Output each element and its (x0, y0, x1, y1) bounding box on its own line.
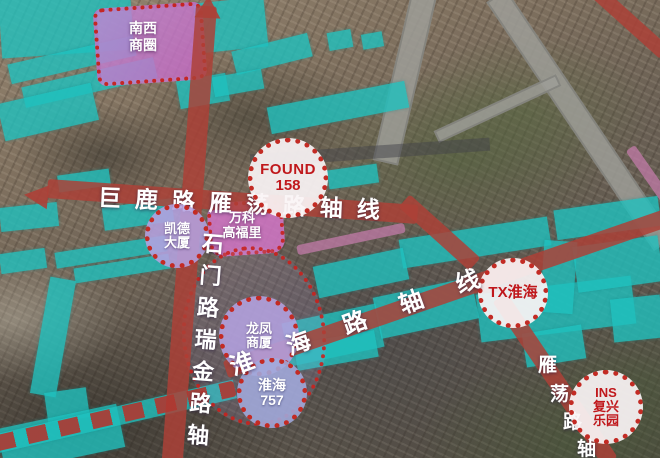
axis-char-yandang-2: 荡 (550, 379, 569, 406)
highway-ramp (434, 74, 562, 143)
cyan-zone (361, 31, 384, 49)
ins-line1: INS (595, 386, 617, 400)
cyan-zone (327, 29, 354, 51)
axis-arrow-left (23, 183, 49, 209)
kaide-line2: 大厦 (164, 236, 190, 250)
found158-line1: FOUND (260, 162, 316, 179)
cyan-zone (30, 277, 76, 398)
callout-ins-fuxing-leyuan: INS 复兴 乐园 (569, 370, 643, 444)
axis-char-yandang-1: 雁 (538, 350, 557, 377)
satellite-map[interactable]: 巨鹿路雁荡路轴线 雁 荡 路 轴 FOUND 158 凯德 大厦 龙凤 商厦 淮… (0, 0, 660, 458)
elevated-highway-north-south (373, 0, 438, 166)
red-band-top-right (589, 0, 660, 59)
wanke-line1: 万科 (212, 210, 272, 225)
huaihai757-line1: 淮海 (258, 378, 286, 393)
cyan-zone (327, 164, 379, 190)
nanxi-line1: 南西 (113, 20, 173, 37)
ins-line2: 复兴 (593, 400, 619, 414)
nanxi-line2: 商圈 (113, 37, 173, 54)
cyan-zone (0, 83, 99, 142)
callout-found158: FOUND 158 (248, 138, 328, 218)
wanke-line2: 高福里 (212, 225, 272, 240)
label-nanxi-shangquan: 南西 商圈 (113, 20, 173, 53)
huaihai757-line2: 757 (260, 393, 283, 408)
cyan-zone (610, 295, 660, 343)
axis-arrow-up (194, 0, 221, 19)
kaide-line1: 凯德 (164, 222, 190, 236)
label-wanke-gaofuli: 万科 高福里 (212, 210, 272, 241)
found158-line2: 158 (275, 178, 300, 195)
ins-line3: 乐园 (593, 414, 619, 428)
cyan-zone (0, 248, 47, 274)
